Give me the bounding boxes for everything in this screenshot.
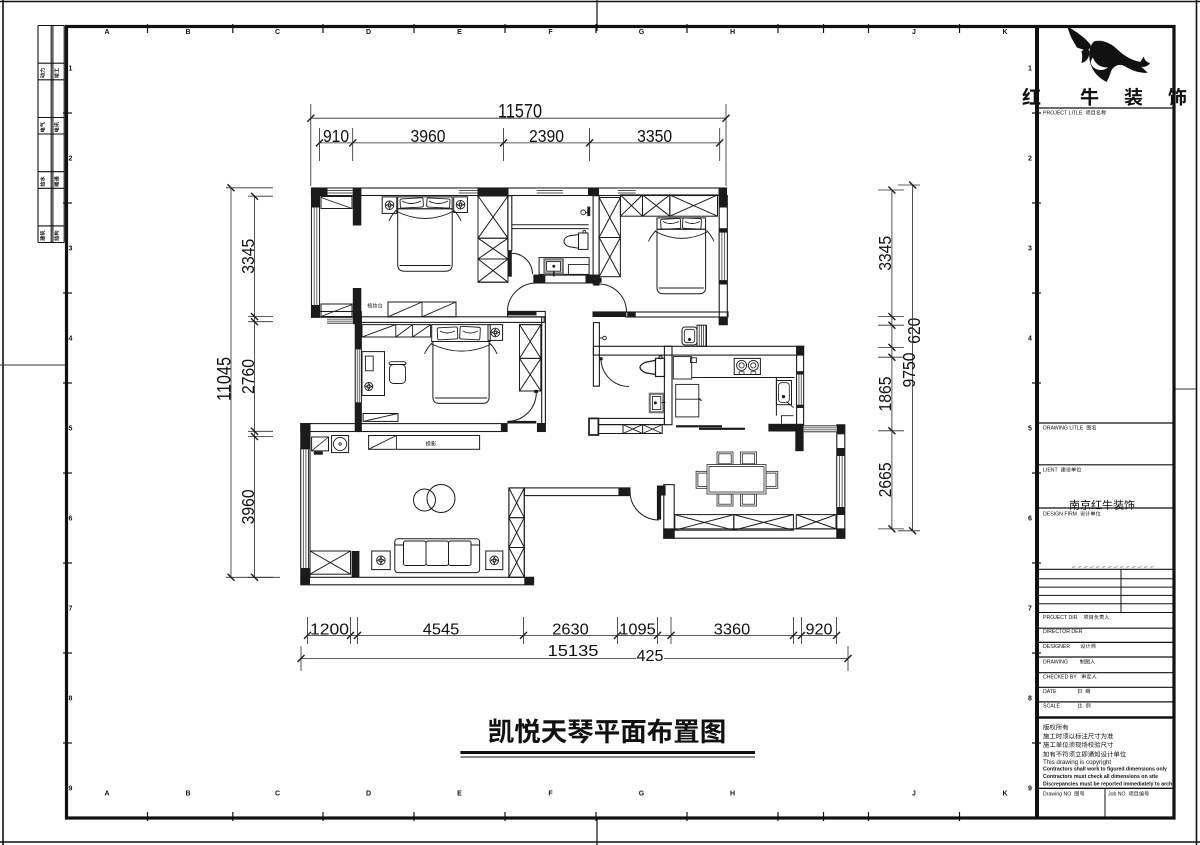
- svg-text:A: A: [104, 791, 109, 798]
- svg-text:Contractors shall work to figu: Contractors shall work to figured dimens…: [1043, 767, 1167, 773]
- svg-text:7: 7: [69, 606, 73, 613]
- svg-text:PROJECT DIR: PROJECT DIR: [1043, 615, 1078, 621]
- svg-text:F: F: [548, 29, 553, 36]
- svg-text:4: 4: [69, 336, 73, 343]
- svg-text:7: 7: [1028, 606, 1032, 613]
- svg-text:9: 9: [69, 786, 73, 793]
- svg-text:E: E: [457, 29, 462, 36]
- svg-text:E: E: [457, 791, 462, 798]
- svg-text:425: 425: [637, 648, 664, 665]
- svg-text:4: 4: [1028, 336, 1032, 343]
- svg-text:H: H: [730, 791, 735, 798]
- svg-text:3360: 3360: [714, 622, 751, 639]
- svg-text:C: C: [275, 791, 280, 798]
- svg-text:1200: 1200: [310, 622, 349, 639]
- svg-text:This drawing is copyright: This drawing is copyright: [1043, 759, 1111, 766]
- svg-text:2: 2: [1028, 156, 1032, 163]
- svg-text:2665: 2665: [875, 462, 895, 497]
- svg-text:CHECKED BY: CHECKED BY: [1043, 675, 1077, 681]
- svg-text:DRAWING: DRAWING: [1043, 660, 1068, 666]
- svg-text:K: K: [1002, 29, 1007, 36]
- svg-text:1: 1: [1028, 66, 1032, 73]
- svg-text:11045: 11045: [214, 357, 235, 401]
- svg-text:15135: 15135: [548, 643, 599, 660]
- svg-text:9: 9: [1028, 786, 1032, 793]
- svg-text:H: H: [730, 29, 735, 36]
- svg-text:Drawing NO: Drawing NO: [1043, 792, 1071, 798]
- svg-text:D: D: [366, 791, 371, 798]
- svg-text:LIENT: LIENT: [1043, 468, 1059, 474]
- svg-text:5: 5: [1028, 426, 1032, 433]
- svg-text:F: F: [548, 791, 553, 798]
- svg-text:J: J: [912, 791, 916, 798]
- svg-text:8: 8: [69, 696, 73, 703]
- svg-text:9750: 9750: [899, 352, 919, 387]
- svg-text:2: 2: [69, 156, 73, 163]
- svg-text:920: 920: [806, 622, 833, 639]
- svg-text:PROJECT LITLE: PROJECT LITLE: [1043, 111, 1083, 117]
- svg-text:11570: 11570: [498, 102, 542, 123]
- svg-text:620: 620: [904, 317, 924, 343]
- svg-text:DRAWING LITLE: DRAWING LITLE: [1043, 426, 1084, 432]
- svg-text:2630: 2630: [552, 622, 589, 639]
- svg-text:2760: 2760: [238, 359, 258, 394]
- svg-text:C: C: [275, 29, 280, 36]
- svg-text:3345: 3345: [238, 239, 258, 274]
- svg-text:SCALE: SCALE: [1043, 704, 1061, 710]
- svg-text:J: J: [912, 29, 916, 36]
- svg-text:5: 5: [69, 426, 73, 433]
- svg-text:4545: 4545: [423, 622, 460, 639]
- svg-text:6: 6: [1028, 516, 1032, 523]
- svg-text:DESIGNER: DESIGNER: [1043, 644, 1070, 650]
- svg-text:8: 8: [1028, 696, 1032, 703]
- svg-text:3: 3: [69, 246, 73, 253]
- svg-text:K: K: [1002, 791, 1007, 798]
- svg-text:DIRECTOR DER: DIRECTOR DER: [1043, 629, 1083, 635]
- svg-text:1095: 1095: [619, 622, 656, 639]
- svg-text:G: G: [639, 29, 645, 36]
- svg-text:D: D: [366, 29, 371, 36]
- svg-text:2390: 2390: [529, 126, 564, 146]
- svg-text:910: 910: [323, 126, 349, 146]
- svg-text:B: B: [185, 791, 190, 798]
- svg-text:3: 3: [1028, 246, 1032, 253]
- svg-text:3960: 3960: [411, 126, 446, 146]
- svg-text:A: A: [104, 29, 109, 36]
- svg-text:3960: 3960: [238, 489, 258, 524]
- svg-text:Job NO: Job NO: [1108, 792, 1126, 798]
- svg-text:6: 6: [69, 516, 73, 523]
- svg-text:G: G: [639, 791, 645, 798]
- svg-text:Contractors must check all dim: Contractors must check all dimensions on…: [1043, 774, 1158, 780]
- svg-text:DESIGN FIRM: DESIGN FIRM: [1043, 512, 1077, 518]
- svg-text:1865: 1865: [875, 377, 895, 412]
- svg-text:DATE: DATE: [1043, 689, 1057, 695]
- svg-text:3350: 3350: [637, 126, 672, 146]
- svg-text:1: 1: [69, 66, 73, 73]
- svg-text:3345: 3345: [875, 236, 895, 271]
- svg-text:B: B: [185, 29, 190, 36]
- svg-text:Discrepancies must be reported: Discrepancies must be reported immediate…: [1043, 782, 1172, 788]
